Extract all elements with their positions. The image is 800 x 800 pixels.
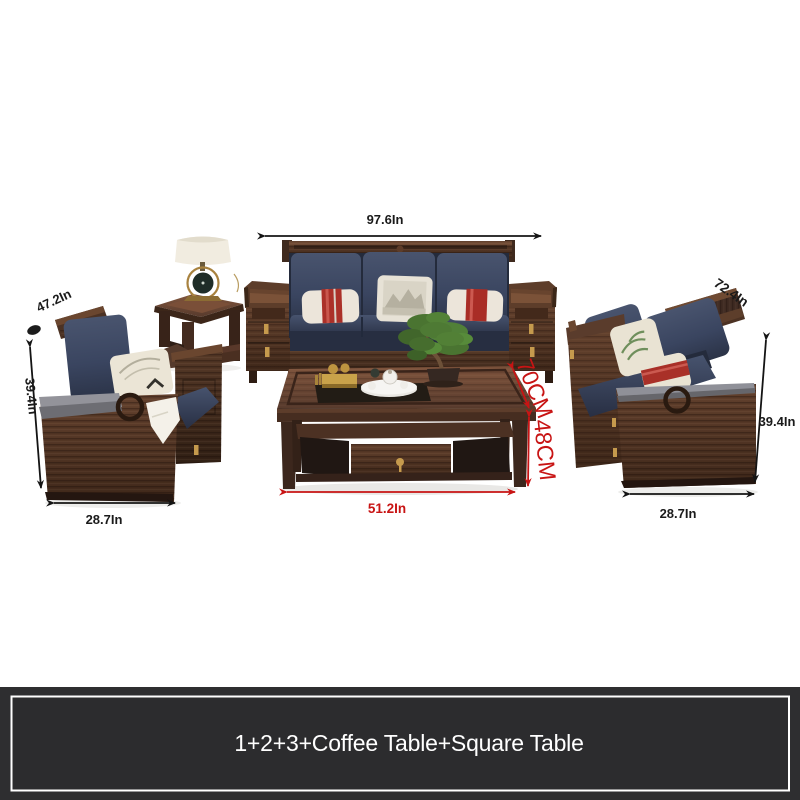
- svg-text:39.4In: 39.4In: [759, 414, 796, 429]
- svg-text:1+2+3+Coffee Table+Square Tabl: 1+2+3+Coffee Table+Square Table: [234, 730, 583, 756]
- svg-text:28.7In: 28.7In: [86, 512, 123, 527]
- svg-text:97.6In: 97.6In: [367, 212, 404, 227]
- svg-text:51.2In: 51.2In: [368, 501, 406, 516]
- svg-text:28.7In: 28.7In: [660, 506, 697, 521]
